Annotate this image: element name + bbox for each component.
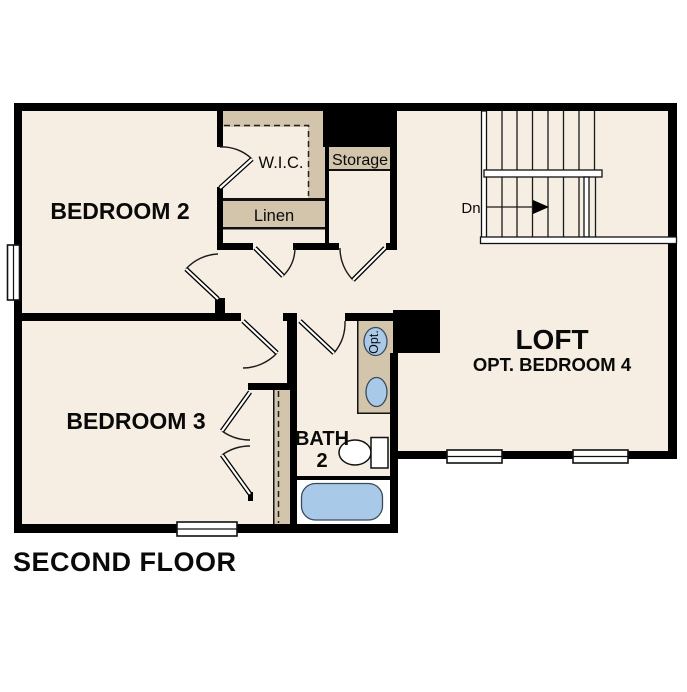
wall-tub-separator xyxy=(297,476,390,480)
page-title: SECOND FLOOR xyxy=(13,547,237,577)
wall-hall-top-b xyxy=(293,243,339,250)
toilet-tank xyxy=(371,438,388,469)
wall-block-top xyxy=(323,108,397,147)
wall-closet3-top xyxy=(248,383,297,390)
bath-label-line2: 2 xyxy=(316,450,327,472)
linen-label: Linen xyxy=(254,207,294,225)
wall-closet3-right xyxy=(290,390,297,524)
wall-bottom-loft xyxy=(390,451,677,459)
bedroom2-label: BEDROOM 2 xyxy=(50,198,189,224)
stair-rail-mid xyxy=(484,170,602,177)
window-loft-1 xyxy=(447,450,502,463)
wall-wic-left-upper xyxy=(217,110,223,147)
wall-bath-right xyxy=(390,353,398,532)
bathtub xyxy=(302,484,383,521)
bath-label-line1: BATH xyxy=(295,428,349,450)
loft-label: LOFT xyxy=(515,324,588,355)
wall-block-loft xyxy=(393,310,440,353)
wall-wic-storage-divider xyxy=(325,147,329,250)
sink xyxy=(366,378,387,407)
wall-hall-bottom-right xyxy=(345,313,393,321)
wall-bed2-bed3 xyxy=(14,313,241,321)
wall-bath-left xyxy=(287,313,297,390)
bedroom3-label: BEDROOM 3 xyxy=(66,408,205,434)
wic-label: W.I.C. xyxy=(259,154,304,172)
window-bedroom3-bottom xyxy=(177,522,237,536)
wall-hall-top-a xyxy=(217,243,253,250)
bedroom3-closet xyxy=(273,390,290,524)
window-loft-2 xyxy=(573,450,628,463)
wall-wic-left-lower xyxy=(217,187,223,247)
floorplan-page: Dn xyxy=(0,0,687,687)
wall-right xyxy=(668,103,677,459)
wall-storage-right xyxy=(390,108,397,250)
storage-label: Storage xyxy=(332,152,388,169)
stair-dn-label: Dn xyxy=(461,200,480,217)
window-bedroom2-left xyxy=(8,245,20,300)
sink-optional-label: Opt. xyxy=(367,330,381,354)
floorplan-svg: Dn xyxy=(0,0,687,687)
stair-stringer-lower-right xyxy=(584,177,589,237)
loft-sub-label: OPT. BEDROOM 4 xyxy=(473,354,632,375)
stair-rail-bottom xyxy=(481,237,677,244)
